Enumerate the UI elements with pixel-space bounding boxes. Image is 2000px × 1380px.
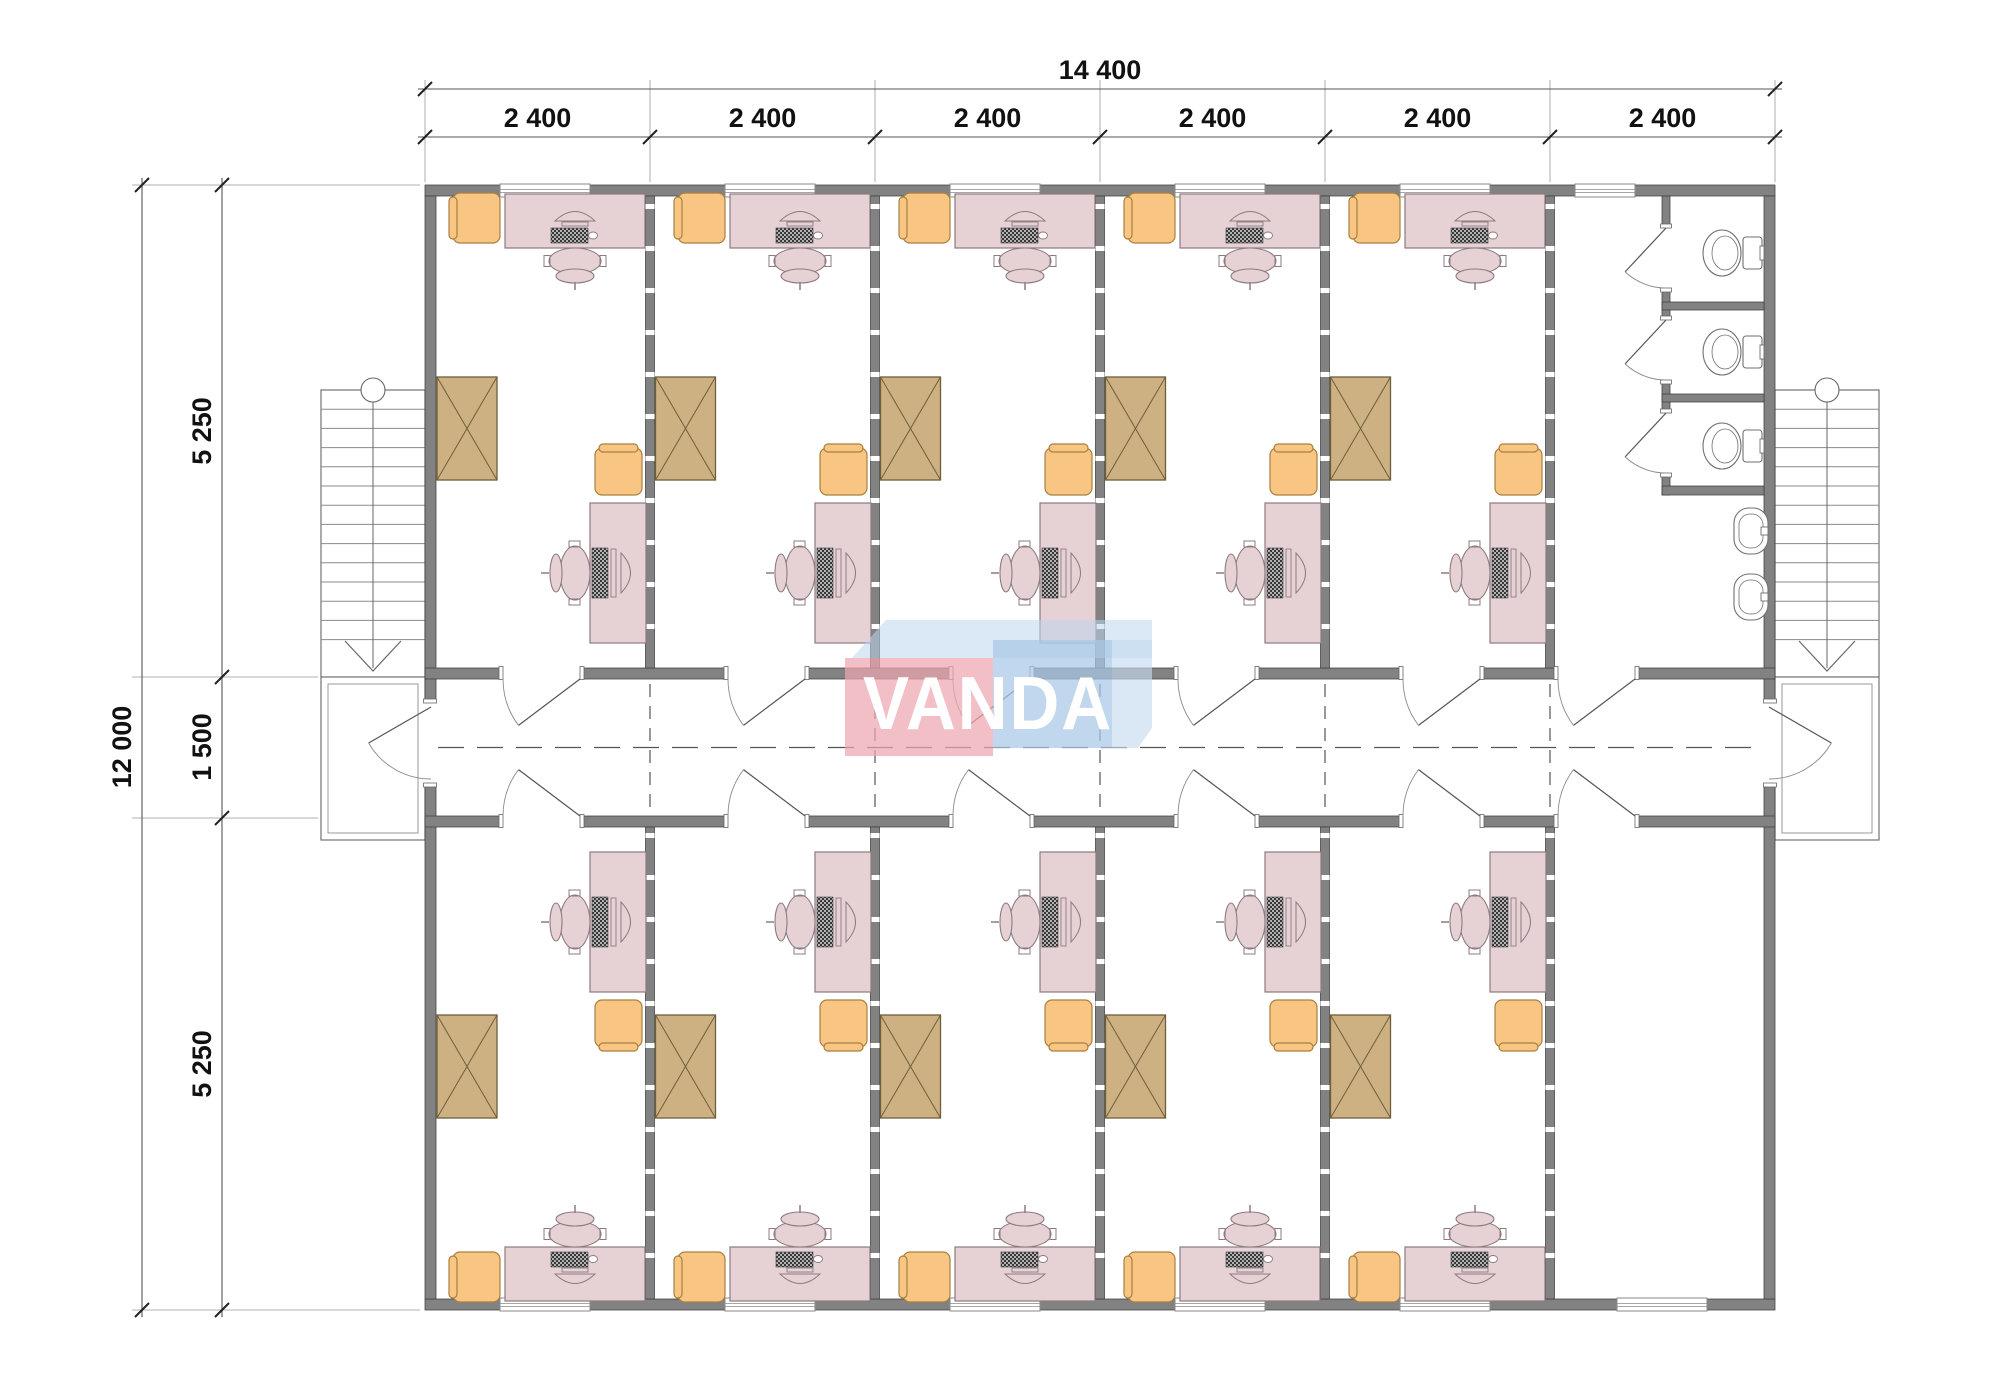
chair-back — [1231, 269, 1269, 283]
mouse — [589, 1256, 598, 1263]
keyboard — [817, 548, 833, 598]
chair-back — [674, 197, 682, 239]
desk — [1265, 503, 1321, 643]
chair-back — [1231, 1212, 1269, 1226]
keyboard — [776, 1252, 813, 1267]
door-jamb — [1174, 815, 1178, 828]
door-jamb — [580, 815, 584, 828]
keyboard — [551, 1252, 588, 1267]
door-opening — [1660, 228, 1672, 288]
keyboard — [592, 897, 608, 947]
desk — [955, 1247, 1095, 1301]
keyboard — [1042, 548, 1058, 598]
chair-seat — [820, 448, 867, 495]
door-jamb — [949, 815, 953, 828]
toilet-bowl — [1703, 329, 1741, 375]
chair-back — [1499, 444, 1538, 452]
door-jamb — [1174, 667, 1178, 680]
chair-back — [899, 1256, 907, 1298]
monitor-base — [1286, 549, 1291, 597]
dimension-label-bay: 2 400 — [1179, 103, 1247, 133]
toilet — [1703, 329, 1764, 375]
chair-seat — [903, 193, 950, 243]
monitor-base — [1061, 549, 1066, 597]
chair-back — [775, 903, 787, 941]
door-opening — [423, 703, 438, 783]
chair-seat — [1495, 1000, 1542, 1047]
toilet-tank — [1743, 336, 1762, 368]
monitor-base — [836, 898, 841, 946]
chair-back — [824, 1043, 863, 1051]
dimension-label-bay: 2 400 — [1404, 103, 1472, 133]
door-opening — [1660, 413, 1672, 473]
chair-seat — [1235, 546, 1265, 600]
door-jamb — [1661, 288, 1672, 292]
watermark: VANDA — [845, 620, 1152, 756]
partition-wall-top — [871, 196, 880, 668]
keyboard — [1267, 548, 1283, 598]
desk — [1405, 1247, 1545, 1301]
chair-back — [449, 197, 457, 239]
visitor-chair — [1045, 444, 1092, 495]
door-jamb — [1255, 667, 1259, 680]
chair-seat — [678, 1252, 725, 1302]
door-jamb — [1635, 815, 1639, 828]
keyboard — [1226, 228, 1263, 243]
chair-back — [1049, 444, 1088, 452]
door-jamb — [805, 667, 809, 680]
chair-back — [1124, 197, 1132, 239]
cabinet — [437, 1015, 497, 1118]
sink-tap — [1761, 593, 1768, 601]
door-jamb — [1661, 224, 1672, 228]
floor-plan-canvas: 14 4002 4002 4002 4002 4002 4002 40012 0… — [0, 0, 2000, 1380]
monitor-base — [787, 1268, 813, 1272]
stairs-left — [321, 378, 425, 840]
visitor-chair — [595, 1000, 642, 1051]
door-opening — [1558, 814, 1635, 829]
chair-seat — [453, 1252, 500, 1302]
chair-seat — [453, 193, 500, 243]
chair-seat — [1495, 448, 1542, 495]
visitor-chair — [899, 193, 950, 243]
chair-back — [550, 554, 562, 592]
monitor-base — [562, 222, 588, 226]
keyboard — [1492, 548, 1508, 598]
chair-seat — [820, 1000, 867, 1047]
stair-start-circle — [1815, 378, 1839, 402]
chair-back — [781, 269, 819, 283]
door-opening — [1558, 666, 1635, 681]
monitor-base — [562, 1268, 588, 1272]
mouse — [589, 232, 598, 239]
chair-back — [550, 903, 562, 941]
partition-wall-top — [646, 196, 655, 668]
chair-seat — [560, 546, 590, 600]
chair-seat — [560, 895, 590, 949]
watermark-text: VANDA — [863, 661, 1113, 745]
chair-seat — [595, 448, 642, 495]
toilet-tank — [1743, 237, 1762, 269]
door-jamb — [499, 815, 503, 828]
mouse — [1264, 232, 1273, 239]
visitor-chair — [1495, 1000, 1542, 1051]
toilet — [1703, 230, 1764, 276]
keyboard — [1001, 1252, 1038, 1267]
cabinet — [656, 1015, 716, 1118]
cabinet — [656, 377, 716, 480]
chair-back — [556, 269, 594, 283]
keyboard — [592, 548, 608, 598]
door-jamb — [1030, 815, 1034, 828]
toilet-flush — [1760, 246, 1764, 260]
chair-back — [1349, 1256, 1357, 1298]
chair-seat — [1128, 193, 1175, 243]
dimension-label-total-height: 12 000 — [107, 706, 137, 789]
chair-back — [1499, 1043, 1538, 1051]
monitor-base — [1462, 1268, 1488, 1272]
door-jamb — [1554, 667, 1558, 680]
monitor-base — [1511, 549, 1516, 597]
monitor-base — [1237, 222, 1263, 226]
chair-seat — [1353, 193, 1400, 243]
chair-seat — [1010, 895, 1040, 949]
door-jamb — [1764, 783, 1777, 787]
stairs-right — [1775, 378, 1879, 840]
monitor-base — [611, 898, 616, 946]
door-jamb — [1399, 815, 1403, 828]
visitor-chair — [1270, 444, 1317, 495]
door-jamb — [580, 667, 584, 680]
door-opening — [1660, 320, 1672, 380]
door-opening — [1178, 666, 1255, 681]
visitor-chair — [820, 1000, 867, 1051]
door-jamb — [424, 783, 437, 787]
cabinet — [437, 377, 497, 480]
dimension-label-bay: 2 400 — [504, 103, 572, 133]
keyboard — [1226, 1252, 1263, 1267]
desk — [1180, 194, 1320, 248]
door-jamb — [499, 667, 503, 680]
chair-seat — [1235, 895, 1265, 949]
door-jamb — [1255, 815, 1259, 828]
visitor-chair — [820, 444, 867, 495]
door-opening — [503, 814, 580, 829]
chair-back — [1450, 554, 1462, 592]
keyboard — [1492, 897, 1508, 947]
chair-back — [1274, 444, 1313, 452]
mouse — [1489, 232, 1498, 239]
dimension-label-bay: 2 400 — [729, 103, 797, 133]
desk — [730, 1247, 870, 1301]
mouse — [814, 232, 823, 239]
chair-seat — [1460, 546, 1490, 600]
desk — [955, 194, 1095, 248]
chair-back — [1006, 269, 1044, 283]
desk — [1490, 503, 1546, 643]
partition-wall-top — [1096, 196, 1105, 668]
dimension-label-bay: 2 400 — [1629, 103, 1697, 133]
sink-tap — [1761, 527, 1768, 535]
monitor-base — [787, 222, 813, 226]
chair-back — [1456, 269, 1494, 283]
monitor-base — [1237, 1268, 1263, 1272]
chair-back — [1049, 1043, 1088, 1051]
landing-outline — [321, 677, 425, 840]
visitor-chair — [1349, 1252, 1400, 1302]
monitor-base — [1012, 1268, 1038, 1272]
monitor-base — [1061, 898, 1066, 946]
window-frame — [1575, 184, 1635, 197]
keyboard — [776, 228, 813, 243]
desk — [815, 852, 871, 992]
cabinet — [881, 377, 941, 480]
chair-back — [899, 197, 907, 239]
desk — [1180, 1247, 1320, 1301]
cabinet — [1331, 377, 1391, 480]
visitor-chair — [449, 1252, 500, 1302]
desk — [505, 194, 645, 248]
door-opening — [1403, 814, 1480, 829]
door-jamb — [1480, 815, 1484, 828]
chair-back — [599, 1043, 638, 1051]
toilet-flush — [1760, 345, 1764, 359]
door-opening — [1762, 703, 1777, 783]
chair-seat — [1010, 546, 1040, 600]
visitor-chair — [1124, 1252, 1175, 1302]
chair-seat — [1270, 1000, 1317, 1047]
visitor-chair — [1270, 1000, 1317, 1051]
mouse — [1264, 1256, 1273, 1263]
door-opening — [503, 666, 580, 681]
chair-seat — [1353, 1252, 1400, 1302]
partition-wall-top — [1321, 196, 1330, 668]
desk — [815, 503, 871, 643]
door-jamb — [1480, 667, 1484, 680]
chair-back — [1456, 1212, 1494, 1226]
monitor-base — [836, 549, 841, 597]
chair-seat — [785, 546, 815, 600]
chair-back — [1225, 554, 1237, 592]
chair-back — [824, 444, 863, 452]
partition-wall-bottom — [871, 827, 880, 1299]
door-jamb — [1661, 473, 1672, 477]
cabinet — [1331, 1015, 1391, 1118]
chair-seat — [1045, 448, 1092, 495]
visitor-chair — [1045, 1000, 1092, 1051]
chair-seat — [1045, 1000, 1092, 1047]
chair-back — [1000, 903, 1012, 941]
door-jamb — [1635, 667, 1639, 680]
chair-seat — [1460, 895, 1490, 949]
chair-back — [449, 1256, 457, 1298]
partition-wall-top — [1546, 196, 1555, 668]
keyboard — [551, 228, 588, 243]
watermark-blue-side — [1112, 640, 1152, 748]
desk — [1265, 852, 1321, 992]
monitor-base — [1511, 898, 1516, 946]
window — [1617, 1298, 1707, 1311]
toilet-bowl — [1703, 423, 1741, 469]
chair-back — [781, 1212, 819, 1226]
chair-seat — [678, 193, 725, 243]
partition-wall-bottom — [1096, 827, 1105, 1299]
chair-seat — [1270, 448, 1317, 495]
door-jamb — [1661, 409, 1672, 413]
visitor-chair — [1349, 193, 1400, 243]
keyboard — [1042, 897, 1058, 947]
chair-seat — [903, 1252, 950, 1302]
toilet-flush — [1760, 439, 1764, 453]
floor-plan-svg: 14 4002 4002 4002 4002 4002 4002 40012 0… — [0, 0, 2000, 1380]
partition-wall-bottom — [1546, 827, 1555, 1299]
desk — [590, 852, 646, 992]
chair-back — [1349, 197, 1357, 239]
visitor-chair — [449, 193, 500, 243]
door-jamb — [1764, 699, 1777, 703]
mouse — [1489, 1256, 1498, 1263]
door-opening — [1178, 814, 1255, 829]
keyboard — [1267, 897, 1283, 947]
door-jamb — [1661, 316, 1672, 320]
door-jamb — [1399, 667, 1403, 680]
chair-seat — [785, 895, 815, 949]
monitor-base — [611, 549, 616, 597]
chair-back — [1124, 1256, 1132, 1298]
cabinet — [1106, 377, 1166, 480]
desk — [1405, 194, 1545, 248]
partition-wall-bottom — [1321, 827, 1330, 1299]
dimension-label-bay: 2 400 — [954, 103, 1022, 133]
toilet-stall-divider — [1662, 394, 1764, 402]
monitor-base — [1012, 222, 1038, 226]
dimension-label-total-width: 14 400 — [1059, 55, 1142, 85]
desk — [1040, 852, 1096, 992]
sink — [1734, 508, 1768, 554]
keyboard — [1451, 228, 1488, 243]
desk — [730, 194, 870, 248]
stair-start-circle — [361, 378, 385, 402]
door-jamb — [724, 815, 728, 828]
monitor-base — [1286, 898, 1291, 946]
keyboard — [817, 897, 833, 947]
desk — [590, 503, 646, 643]
chair-back — [1274, 1043, 1313, 1051]
chair-back — [1006, 1212, 1044, 1226]
chair-back — [599, 444, 638, 452]
door-jamb — [805, 815, 809, 828]
chair-back — [1225, 903, 1237, 941]
door-opening — [728, 814, 805, 829]
visitor-chair — [674, 193, 725, 243]
desk — [505, 1247, 645, 1301]
door-opening — [953, 814, 1030, 829]
sink — [1734, 574, 1768, 620]
partition-wall-bottom — [646, 827, 655, 1299]
chair-back — [674, 1256, 682, 1298]
toilet — [1703, 423, 1764, 469]
mouse — [1039, 232, 1048, 239]
landing-outline — [1775, 677, 1879, 840]
toilet-bowl — [1703, 230, 1741, 276]
chair-back — [1000, 554, 1012, 592]
visitor-chair — [674, 1252, 725, 1302]
door-jamb — [1554, 815, 1558, 828]
window — [1575, 184, 1635, 197]
visitor-chair — [1495, 444, 1542, 495]
visitor-chair — [595, 444, 642, 495]
door-jamb — [1661, 380, 1672, 384]
door-opening — [728, 666, 805, 681]
chair-seat — [1128, 1252, 1175, 1302]
toilet-stall-divider — [1662, 302, 1764, 310]
visitor-chair — [899, 1252, 950, 1302]
door-opening — [1403, 666, 1480, 681]
cabinet — [1106, 1015, 1166, 1118]
chair-back — [556, 1212, 594, 1226]
dimension-label-segment: 1 500 — [187, 713, 217, 781]
mouse — [1039, 1256, 1048, 1263]
chair-back — [775, 554, 787, 592]
keyboard — [1451, 1252, 1488, 1267]
monitor-base — [1462, 222, 1488, 226]
chair-seat — [595, 1000, 642, 1047]
dimension-label-segment: 5 250 — [187, 1030, 217, 1098]
chair-back — [1450, 903, 1462, 941]
door-jamb — [724, 667, 728, 680]
keyboard — [1001, 228, 1038, 243]
desk — [1490, 852, 1546, 992]
toilet-tank — [1743, 430, 1762, 462]
door-jamb — [424, 699, 437, 703]
dimension-label-segment: 5 250 — [187, 397, 217, 465]
mouse — [814, 1256, 823, 1263]
toilet-stall-end-wall — [1662, 486, 1764, 495]
cabinet — [881, 1015, 941, 1118]
window-frame — [1617, 1298, 1707, 1311]
visitor-chair — [1124, 193, 1175, 243]
